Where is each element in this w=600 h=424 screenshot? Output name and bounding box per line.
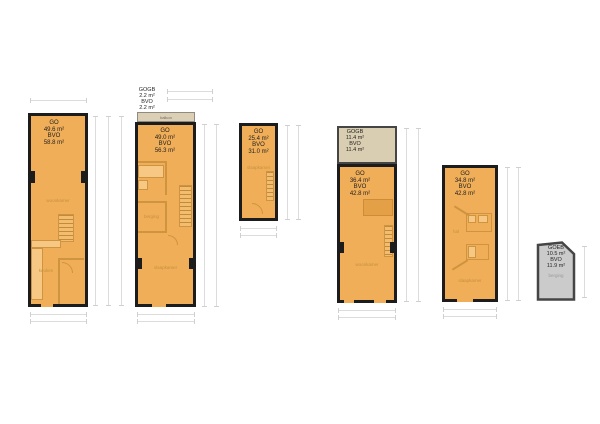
bath-fixture <box>138 165 164 178</box>
wall-segment <box>31 171 35 183</box>
kitchen-counter <box>31 248 43 300</box>
wall-opening <box>152 304 166 307</box>
dimension-line <box>443 309 497 310</box>
wall-opening <box>41 304 53 307</box>
dimension-line <box>167 91 213 92</box>
wall-opening <box>344 300 354 303</box>
interior-wall <box>58 258 84 260</box>
stairs <box>179 185 192 227</box>
wall-opening <box>457 299 473 302</box>
annex-area-label: GOGB 2.2 m² BVO 2.2 m² <box>132 87 162 111</box>
dimension-line <box>30 321 87 322</box>
interior-wall <box>58 258 60 304</box>
interior-wall <box>452 259 468 270</box>
floorplan-unit-5: GO 34.8 m² BVO 42.8 m² hal slaapkamer <box>442 165 498 302</box>
dimension-line <box>298 125 299 220</box>
dimension-line <box>406 128 407 302</box>
dimension-line <box>338 310 396 311</box>
room-label: berging <box>138 214 165 219</box>
stairs <box>266 171 274 201</box>
room-label: hal <box>449 229 463 234</box>
floorplan-unit-1: GO 49.6 m² BVO 58.8 m² woonkamer keuken <box>28 113 88 307</box>
room-label: slaapkamer <box>138 265 193 270</box>
room-label: slaapkamer <box>242 165 275 170</box>
interior-wall <box>165 161 167 195</box>
dimension-line <box>240 228 277 229</box>
dimension-line <box>30 100 87 101</box>
floorplan-unit-2: GO 49.0 m² BVO 56.3 m² berging slaapkame… <box>135 122 196 307</box>
room-label: woonkamer <box>31 198 85 203</box>
dimension-line <box>338 317 396 318</box>
dimension-line <box>121 116 122 306</box>
area-label: GO 49.0 m² BVO 56.3 m² <box>145 128 185 154</box>
dimension-line <box>418 128 419 302</box>
area-label: GO 25.4 m² BVO 31.0 m² <box>242 129 275 155</box>
dimension-line <box>584 246 585 298</box>
door-arc <box>168 235 178 245</box>
interior-wall <box>138 231 167 233</box>
dimension-line <box>30 314 87 315</box>
area-label: GOEB 10.5 m² BVO 11.9 m² <box>539 245 573 269</box>
door-arc <box>62 262 73 273</box>
roof-terrace: GOGB 11.4 m² BVO 11.4 m² <box>337 126 397 164</box>
room-label: balkon <box>138 115 194 120</box>
sink-fixture <box>138 180 148 190</box>
wall-segment <box>340 242 344 253</box>
stairs <box>58 214 74 242</box>
floorplan-unit-3: GO 25.4 m² BVO 31.0 m² slaapkamer <box>239 123 278 221</box>
wall-opening <box>374 300 386 303</box>
dimension-line <box>108 116 109 306</box>
stairwell-void <box>363 199 393 216</box>
interior-wall <box>138 201 167 203</box>
room-label: woonkamer <box>340 262 394 267</box>
area-label: GO 34.8 m² BVO 42.8 m² <box>447 171 483 197</box>
floorplan-unit-4: GO 36.4 m² BVO 42.8 m² woonkamer <box>337 164 397 303</box>
dimension-line <box>95 116 96 306</box>
kitchen-counter <box>31 240 61 248</box>
dimension-line <box>240 235 277 236</box>
bath-fixture <box>478 215 488 223</box>
dimension-line <box>204 124 205 307</box>
dimension-line <box>443 316 497 317</box>
dimension-line <box>287 125 288 220</box>
dimension-line <box>137 321 195 322</box>
interior-wall <box>165 201 167 233</box>
room-label: keuken <box>31 268 61 273</box>
annex-area-label: GOGB 11.4 m² BVO 11.4 m² <box>340 129 370 153</box>
dimension-line <box>216 124 217 307</box>
dimension-line <box>518 167 519 301</box>
area-label: GO 49.6 m² BVO 58.8 m² <box>32 120 76 146</box>
room-label: berging <box>539 273 573 278</box>
wall-segment <box>390 242 394 253</box>
interior-wall <box>138 161 166 163</box>
dimension-line <box>167 99 213 100</box>
wall-segment <box>81 171 85 183</box>
area-label: GO 36.4 m² BVO 42.8 m² <box>342 171 378 197</box>
balcony: balkon <box>137 112 195 122</box>
shower-fixture <box>468 246 476 258</box>
room-label: slaapkamer <box>445 278 495 283</box>
floorplan-canvas: GO 49.6 m² BVO 58.8 m² woonkamer keuken … <box>0 0 600 424</box>
dimension-line <box>507 167 508 301</box>
door-arc <box>252 203 263 214</box>
bath-fixture <box>468 215 476 223</box>
dimension-line <box>137 314 195 315</box>
